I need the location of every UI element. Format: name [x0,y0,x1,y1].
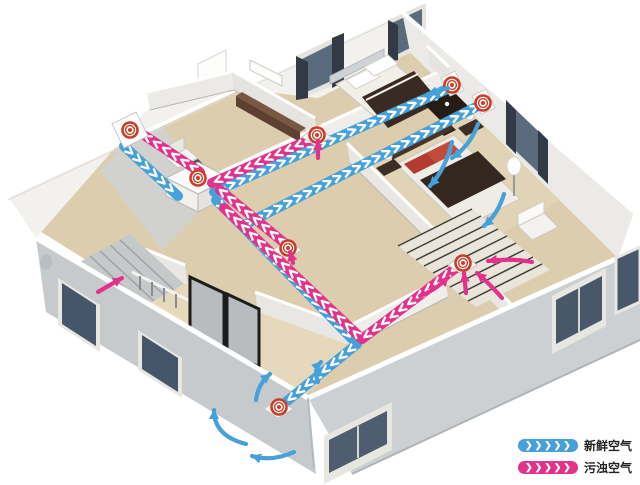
fresh-air-label: 新鲜空气 [584,437,632,454]
vent-dot [481,101,485,105]
vent-dot [277,405,281,409]
vent-dot [128,128,132,132]
exhaust-flow-arrow [290,252,293,263]
legend-item-fresh: ❯❯❯❯❯ 新鲜空气 [518,437,632,454]
exterior-vent-cap [40,254,52,270]
fresh-flow-arrow [252,452,294,458]
legend-item-exhaust: ❯❯❯❯❯ 污浊空气 [518,459,632,476]
legend: ❯❯❯❯❯ 新鲜空气 ❯❯❯❯❯ 污浊空气 [518,437,632,476]
house-illustration [0,0,640,485]
vent-dot [286,246,290,250]
fresh-air-arrow-swatch: ❯❯❯❯❯ [518,439,578,452]
window [616,247,640,313]
vent-dot [315,133,319,137]
exhaust-air-arrow-swatch: ❯❯❯❯❯ [518,461,578,474]
vent-dot [461,261,465,265]
exhaust-air-label: 污浊空气 [584,459,632,476]
unit-top-vent-icon [191,171,206,186]
vent-dot [196,176,200,180]
vent-dot [450,83,454,87]
ventilation-diagram: ❯❯❯❯❯ 新鲜空气 ❯❯❯❯❯ 污浊空气 [0,0,640,485]
exhaust-flow-arrow [464,273,466,293]
exhaust-flow-arrow [488,260,532,262]
